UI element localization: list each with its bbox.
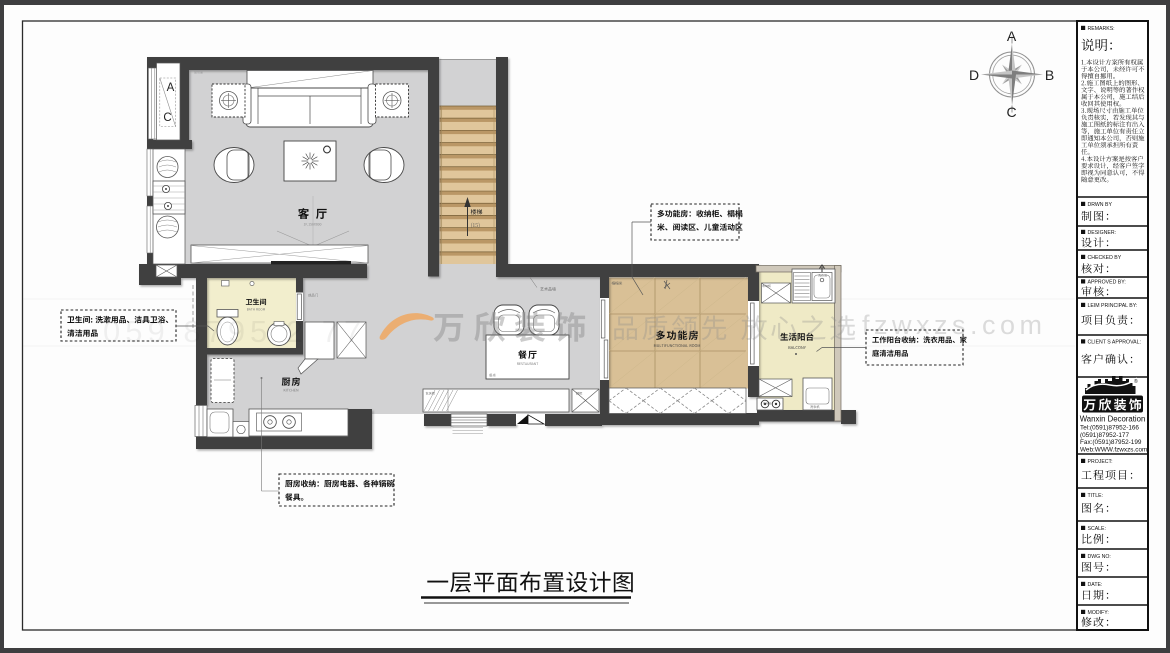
svg-text:A: A: [1007, 28, 1017, 44]
svg-text:(0591)87952-177: (0591)87952-177: [1080, 432, 1129, 439]
svg-text:B: B: [1045, 67, 1054, 83]
svg-text:DATE:: DATE:: [1088, 582, 1103, 588]
svg-text:MODIFY:: MODIFY:: [1088, 610, 1109, 616]
svg-text:REMARKS:: REMARKS:: [1088, 26, 1115, 32]
svg-text:Web:WWW.fzwxzs.com: Web:WWW.fzwxzs.com: [1080, 446, 1147, 453]
svg-text:SCALE:: SCALE:: [1088, 526, 1106, 532]
svg-text:APPROVED BY:: APPROVED BY:: [1088, 280, 1126, 286]
svg-text:A: A: [167, 82, 175, 94]
svg-text:PROJECT:: PROJECT:: [1088, 459, 1113, 465]
svg-text:C: C: [163, 112, 171, 124]
svg-text:DESIGNER:: DESIGNER:: [1088, 230, 1117, 236]
svg-text:TITLE:: TITLE:: [1088, 493, 1104, 499]
svg-text:DRWN BY: DRWN BY: [1088, 202, 1113, 208]
svg-text:C: C: [1006, 104, 1016, 120]
svg-text:LEIM PRINCIPAL BY:: LEIM PRINCIPAL BY:: [1088, 303, 1138, 309]
svg-text:Tel:(0591)87952-166: Tel:(0591)87952-166: [1080, 425, 1139, 432]
svg-text:®: ®: [1134, 378, 1138, 385]
svg-text:Fax:(0591)87952-199: Fax:(0591)87952-199: [1080, 439, 1142, 446]
svg-text:CLIENT S APPROVAL:: CLIENT S APPROVAL:: [1088, 340, 1141, 346]
svg-text:D: D: [969, 67, 979, 83]
svg-text:DWG NO:: DWG NO:: [1088, 554, 1111, 560]
svg-text:CHECKED BY: CHECKED BY: [1088, 255, 1122, 261]
svg-text:Wanxin Decoration: Wanxin Decoration: [1080, 415, 1146, 424]
